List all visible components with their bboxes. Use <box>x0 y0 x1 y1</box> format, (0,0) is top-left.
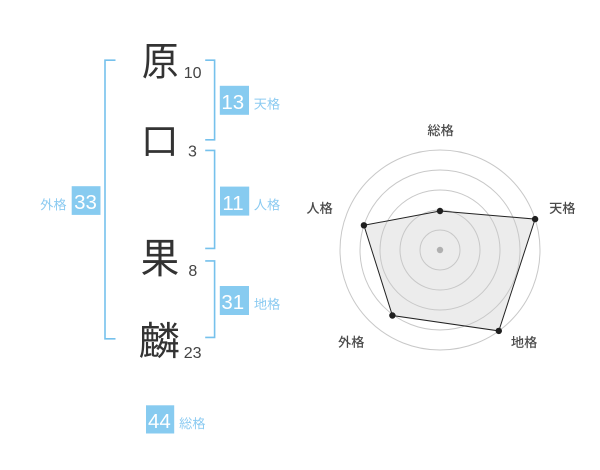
svg-text:23: 23 <box>184 345 202 362</box>
svg-text:33: 33 <box>74 191 97 214</box>
svg-text:44: 44 <box>148 410 171 433</box>
svg-text:10: 10 <box>184 65 202 82</box>
svg-text:31: 31 <box>221 291 244 314</box>
svg-text:8: 8 <box>188 263 197 280</box>
svg-text:3: 3 <box>188 144 197 161</box>
svg-text:13: 13 <box>221 91 244 114</box>
svg-text:11: 11 <box>222 192 243 215</box>
